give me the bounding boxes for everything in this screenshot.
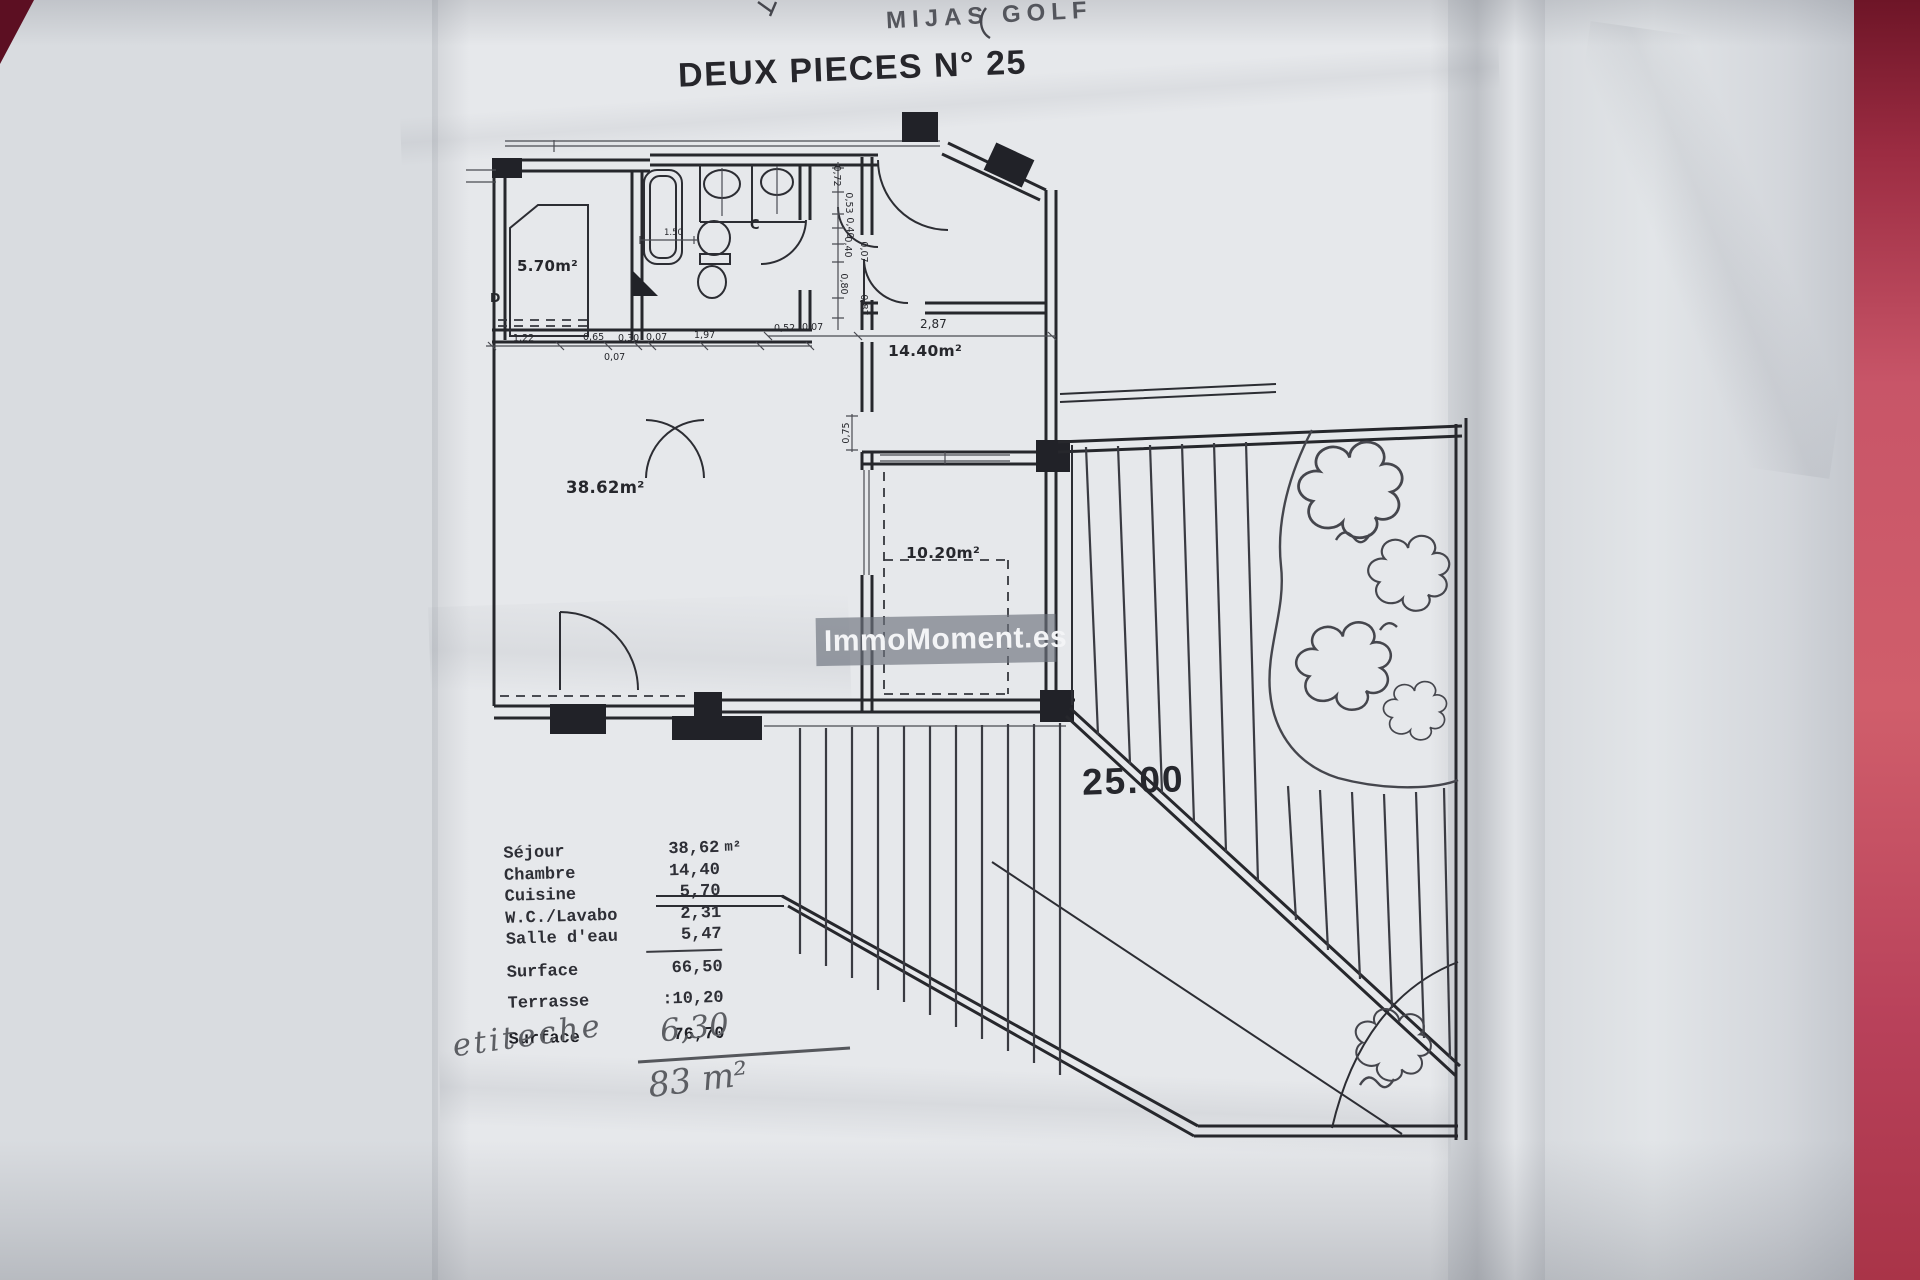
- watermark: ImmoMoment.es: [816, 614, 1057, 666]
- photo-of-floor-plan-sheet: { "palette": {"paper": "#e6e8eb", "ink":…: [0, 0, 1920, 1280]
